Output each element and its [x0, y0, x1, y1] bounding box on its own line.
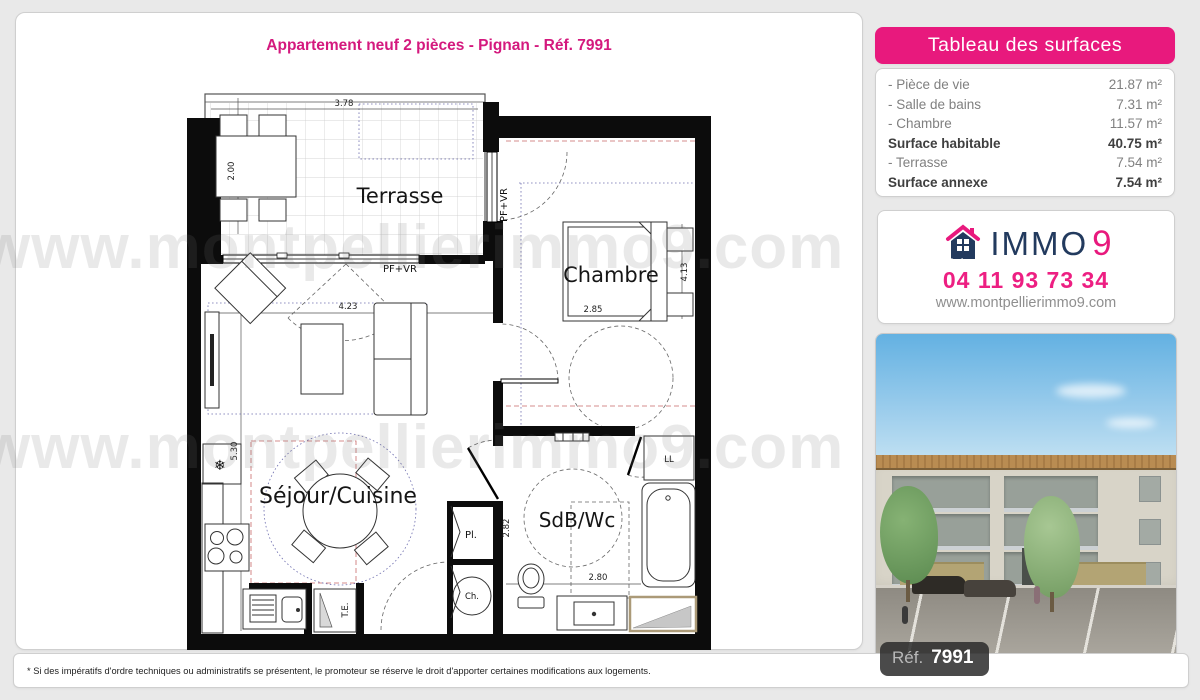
fridge-snowflake-icon: ❄: [214, 458, 226, 474]
row-label: Surface habitable: [888, 134, 1001, 154]
room-label-terrasse: Terrasse: [356, 184, 444, 208]
photo-person: [902, 606, 908, 624]
immo9-house-icon: [940, 223, 986, 265]
floor-plan-card: Appartement neuf 2 pièces - Pignan - Réf…: [15, 12, 863, 650]
agency-phone: 04 11 93 73 34: [878, 267, 1174, 294]
photo-person: [1034, 586, 1040, 604]
dim-terrasse-width: 3.78: [335, 99, 354, 109]
ch-label: Ch.: [465, 592, 479, 602]
agency-card: IMMO 9 04 11 93 73 34 www.montpellierimm…: [877, 210, 1175, 324]
dim-sdb-width: 2.80: [589, 573, 608, 583]
row-value: 7.31 m²: [1116, 95, 1162, 115]
table-row: - Salle de bains 7.31 m²: [876, 95, 1174, 115]
floor-plan-drawing: Terrasse Chambre Séjour/Cuisine SdB/Wc P…: [184, 86, 716, 652]
photo-tree: [1024, 496, 1080, 598]
page-title: Appartement neuf 2 pièces - Pignan - Réf…: [16, 37, 862, 55]
dim-sejour-width: 4.23: [339, 302, 358, 312]
pl-label: Pl.: [465, 530, 477, 541]
dim-sejour-depth: 5.30: [230, 442, 240, 461]
photo-cloud: [1106, 418, 1156, 428]
surface-table: - Pièce de vie 21.87 m² - Salle de bains…: [875, 68, 1175, 197]
room-label-sejour-cuisine: Séjour/Cuisine: [259, 484, 417, 509]
row-label: Surface annexe: [888, 173, 988, 193]
room-label-sdb-wc: SdB/Wc: [539, 508, 616, 532]
row-label: - Terrasse: [888, 153, 948, 173]
page: Appartement neuf 2 pièces - Pignan - Réf…: [0, 0, 1200, 700]
photo-roof: [875, 455, 1177, 470]
brand-nine-text: 9: [1092, 224, 1111, 264]
row-label: - Pièce de vie: [888, 75, 970, 95]
surface-table-title: Tableau des surfaces: [928, 34, 1122, 57]
reference-badge: Réf.7991: [880, 642, 989, 676]
row-value: 40.75 m²: [1108, 134, 1162, 154]
row-value: 7.54 m²: [1115, 173, 1162, 193]
table-row: - Chambre 11.57 m²: [876, 114, 1174, 134]
row-label: - Salle de bains: [888, 95, 981, 115]
reference-value: 7991: [931, 647, 973, 668]
living-furniture: [205, 253, 427, 415]
bedroom-window-label: PF+VR: [499, 188, 510, 222]
dining-set: [292, 458, 390, 565]
dim-chambre-width: 2.85: [584, 305, 603, 315]
row-value: 11.57 m²: [1110, 114, 1162, 134]
agency-website: www.montpellierimmo9.com: [878, 295, 1174, 311]
brand-immo-text: IMMO: [990, 225, 1088, 263]
table-row: - Pièce de vie 21.87 m²: [876, 75, 1174, 95]
photo-tree-trunk: [906, 580, 910, 602]
row-value: 7.54 m²: [1116, 153, 1162, 173]
ll-label: LL: [664, 455, 674, 465]
photo-car: [964, 580, 1016, 597]
table-row: - Terrasse 7.54 m²: [876, 153, 1174, 173]
surface-table-header: Tableau des surfaces: [875, 27, 1175, 64]
photo-cloud: [1056, 384, 1126, 398]
row-value: 21.87 m²: [1109, 75, 1162, 95]
building-photo: Réf.7991: [875, 333, 1177, 685]
dim-sdb-depth: 2.82: [502, 519, 512, 538]
te-label: T.E.: [341, 603, 351, 619]
dim-terrasse-depth: 2.00: [227, 162, 237, 181]
photo-tree: [880, 486, 938, 584]
disclaimer-bar: * Si des impératifs d'ordre techniques o…: [13, 653, 1189, 688]
table-row-total-habitable: Surface habitable 40.75 m²: [876, 134, 1174, 154]
disclaimer-text: * Si des impératifs d'ordre techniques o…: [14, 666, 651, 676]
bay-window-label: PF+VR: [383, 264, 417, 275]
table-row-total-annexe: Surface annexe 7.54 m²: [876, 173, 1174, 193]
row-label: - Chambre: [888, 114, 952, 134]
photo-tree-trunk: [1050, 592, 1054, 612]
reference-label: Réf.: [892, 648, 923, 667]
room-label-chambre: Chambre: [563, 263, 659, 287]
bedroom-window: [487, 152, 497, 222]
agency-logo: IMMO 9: [878, 223, 1174, 265]
dim-chambre-depth: 4.13: [680, 263, 690, 282]
